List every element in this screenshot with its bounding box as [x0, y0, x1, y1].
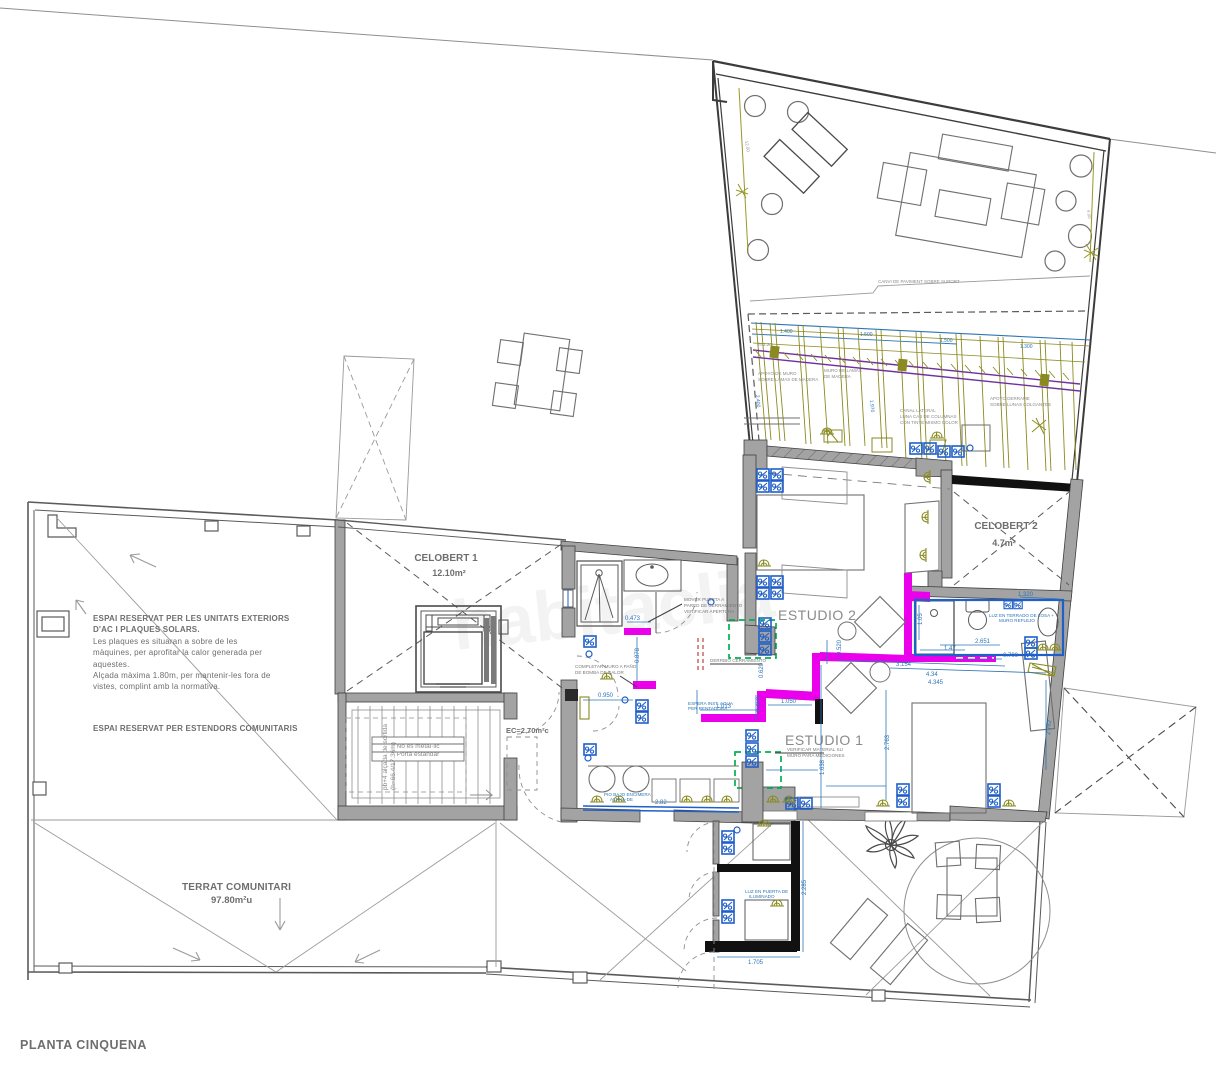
- svg-text:ESPAI RESERVAT PER ESTENDORS C: ESPAI RESERVAT PER ESTENDORS COMUNITARIS: [93, 724, 298, 733]
- svg-text:CANVI DE PAVIMENT SOBRE SUPORT: CANVI DE PAVIMENT SOBRE SUPORT: [878, 279, 960, 284]
- svg-text:0.700: 0.700: [1003, 653, 1019, 659]
- svg-text:2.82: 2.82: [655, 800, 667, 806]
- svg-text:D'AC I PLAQUES SOLARS.: D'AC I PLAQUES SOLARS.: [93, 625, 200, 634]
- svg-text:DE MADERA: DE MADERA: [824, 374, 851, 379]
- svg-text:CELOBERT 1: CELOBERT 1: [414, 553, 478, 564]
- svg-text:vistes, complint amb la normat: vistes, complint amb la normativa.: [93, 682, 220, 691]
- svg-text:ILUMINADO: ILUMINADO: [749, 894, 775, 899]
- svg-text:ESPAI RESERVAT PER LES UNITATS: ESPAI RESERVAT PER LES UNITATS EXTERIORS: [93, 614, 290, 623]
- svg-text:1.300: 1.300: [1020, 344, 1033, 350]
- svg-text:1.638: 1.638: [820, 759, 826, 775]
- svg-text:Porta estàndar: Porta estàndar: [397, 751, 440, 758]
- svg-text:PIO BAJO ENCIMERA: PIO BAJO ENCIMERA: [604, 792, 652, 797]
- svg-text:Alçada màxima 1.80m, per mante: Alçada màxima 1.80m, per mantenir-les fo…: [93, 671, 271, 680]
- svg-text:12.10m²: 12.10m²: [432, 568, 466, 578]
- svg-text:0.520: 0.520: [837, 639, 843, 655]
- svg-text:APOYO DE MURO: APOYO DE MURO: [758, 371, 797, 376]
- svg-text:VERIFICAR MATERIAL SU: VERIFICAR MATERIAL SU: [787, 747, 843, 752]
- svg-text:12.00: 12.00: [744, 140, 751, 152]
- svg-text:DERRIBO CERRAMIENTO: DERRIBO CERRAMIENTO: [710, 658, 766, 663]
- svg-text:4.00: 4.00: [1086, 210, 1092, 220]
- svg-text:97.80m²u: 97.80m²u: [211, 895, 252, 906]
- svg-text:SOBRE LUNAS COLGANTES: SOBRE LUNAS COLGANTES: [990, 402, 1051, 407]
- svg-text:0.620: 0.620: [759, 662, 765, 678]
- svg-text:1.050: 1.050: [781, 699, 797, 705]
- svg-text:3.154: 3.154: [896, 662, 912, 668]
- svg-text:2.285: 2.285: [802, 879, 808, 895]
- svg-text:2.763: 2.763: [885, 734, 891, 750]
- svg-text:1.970: 1.970: [868, 400, 875, 413]
- svg-text:1.05: 1.05: [918, 613, 924, 625]
- svg-text:(h=66.4/17.36m): (h=66.4/17.36m): [390, 742, 397, 790]
- svg-text:0.450: 0.450: [756, 696, 762, 712]
- svg-text:LUNA CAB DE COLUMNAS: LUNA CAB DE COLUMNAS: [900, 414, 957, 419]
- svg-text:SOBRE LAMAS DE MADERA: SOBRE LAMAS DE MADERA: [758, 377, 818, 382]
- svg-text:1.47: 1.47: [944, 646, 956, 652]
- svg-text:PLANTA CINQUENA: PLANTA CINQUENA: [20, 1038, 147, 1052]
- svg-text:LUZ EN TERRADO DE LOSA +: LUZ EN TERRADO DE LOSA +: [989, 613, 1054, 618]
- svg-text:0.878: 0.878: [635, 647, 641, 663]
- svg-text:4.34: 4.34: [926, 672, 938, 678]
- svg-text:1.500: 1.500: [940, 338, 953, 344]
- svg-text:PER RENTADORA: PER RENTADORA: [688, 706, 728, 711]
- svg-text:1.500: 1.500: [860, 332, 873, 338]
- svg-text:MURO REFLEJO: MURO REFLEJO: [999, 618, 1035, 623]
- svg-text:0.473: 0.473: [625, 616, 641, 622]
- svg-text:4.345: 4.345: [928, 680, 944, 686]
- svg-text:VERIFICAR APERTURA: VERIFICAR APERTURA: [684, 609, 735, 614]
- svg-text:Les plaques es situaran a sobr: Les plaques es situaran a sobre de les: [93, 637, 238, 646]
- svg-text:DE BOMBA DE CALOR: DE BOMBA DE CALOR: [575, 670, 624, 675]
- svg-text:ESTUDIO 2: ESTUDIO 2: [778, 607, 856, 623]
- svg-text:EC=2.70m²c: EC=2.70m²c: [506, 726, 549, 735]
- svg-text:MURO DE LAMAS: MURO DE LAMAS: [824, 368, 862, 373]
- svg-text:h=2.20: h=2.20: [758, 342, 772, 347]
- svg-text:2.651: 2.651: [975, 639, 991, 645]
- svg-text:CELOBERT 2: CELOBERT 2: [974, 521, 1038, 532]
- svg-text:LUZ EN PUERTA DE: LUZ EN PUERTA DE: [745, 889, 788, 894]
- svg-text:4.7m²: 4.7m²: [992, 538, 1016, 548]
- svg-text:CON TINTE MISMO COLOR: CON TINTE MISMO COLOR: [900, 420, 959, 425]
- svg-text:CANAL LATERAL: CANAL LATERAL: [900, 408, 936, 413]
- svg-text:2.400: 2.400: [754, 395, 761, 408]
- svg-text:TERRAT COMUNITARI: TERRAT COMUNITARI: [182, 882, 291, 893]
- svg-text:0.950: 0.950: [598, 693, 614, 699]
- svg-text:MOVER PUERTA A: MOVER PUERTA A: [684, 597, 725, 602]
- svg-text:ESPERA INST. AGUA: ESPERA INST. AGUA: [688, 701, 734, 706]
- svg-text:No es metàl·lic: No es metàl·lic: [397, 743, 441, 750]
- svg-text:MURO PARA MEDICIONES: MURO PARA MEDICIONES: [787, 753, 845, 758]
- svg-text:1.400: 1.400: [780, 329, 793, 335]
- svg-text:pb+4 alçada de sortida: pb+4 alçada de sortida: [382, 724, 389, 790]
- svg-text:PARED DE CERRAMIENTO: PARED DE CERRAMIENTO: [684, 603, 743, 608]
- svg-text:màquines, per aprofitar la cal: màquines, per aprofitar la calor generad…: [93, 648, 262, 657]
- svg-text:1.705: 1.705: [748, 960, 764, 966]
- svg-text:aquestes.: aquestes.: [93, 660, 130, 669]
- svg-text:COMPLETAR MURO A PAÑO: COMPLETAR MURO A PAÑO: [575, 663, 637, 669]
- svg-text:APOYO DERRAME: APOYO DERRAME: [990, 396, 1030, 401]
- svg-text:1.320: 1.320: [1018, 592, 1034, 598]
- svg-text:ALPHA-DE: ALPHA-DE: [610, 797, 633, 802]
- svg-text:ESTUDIO 1: ESTUDIO 1: [785, 732, 863, 748]
